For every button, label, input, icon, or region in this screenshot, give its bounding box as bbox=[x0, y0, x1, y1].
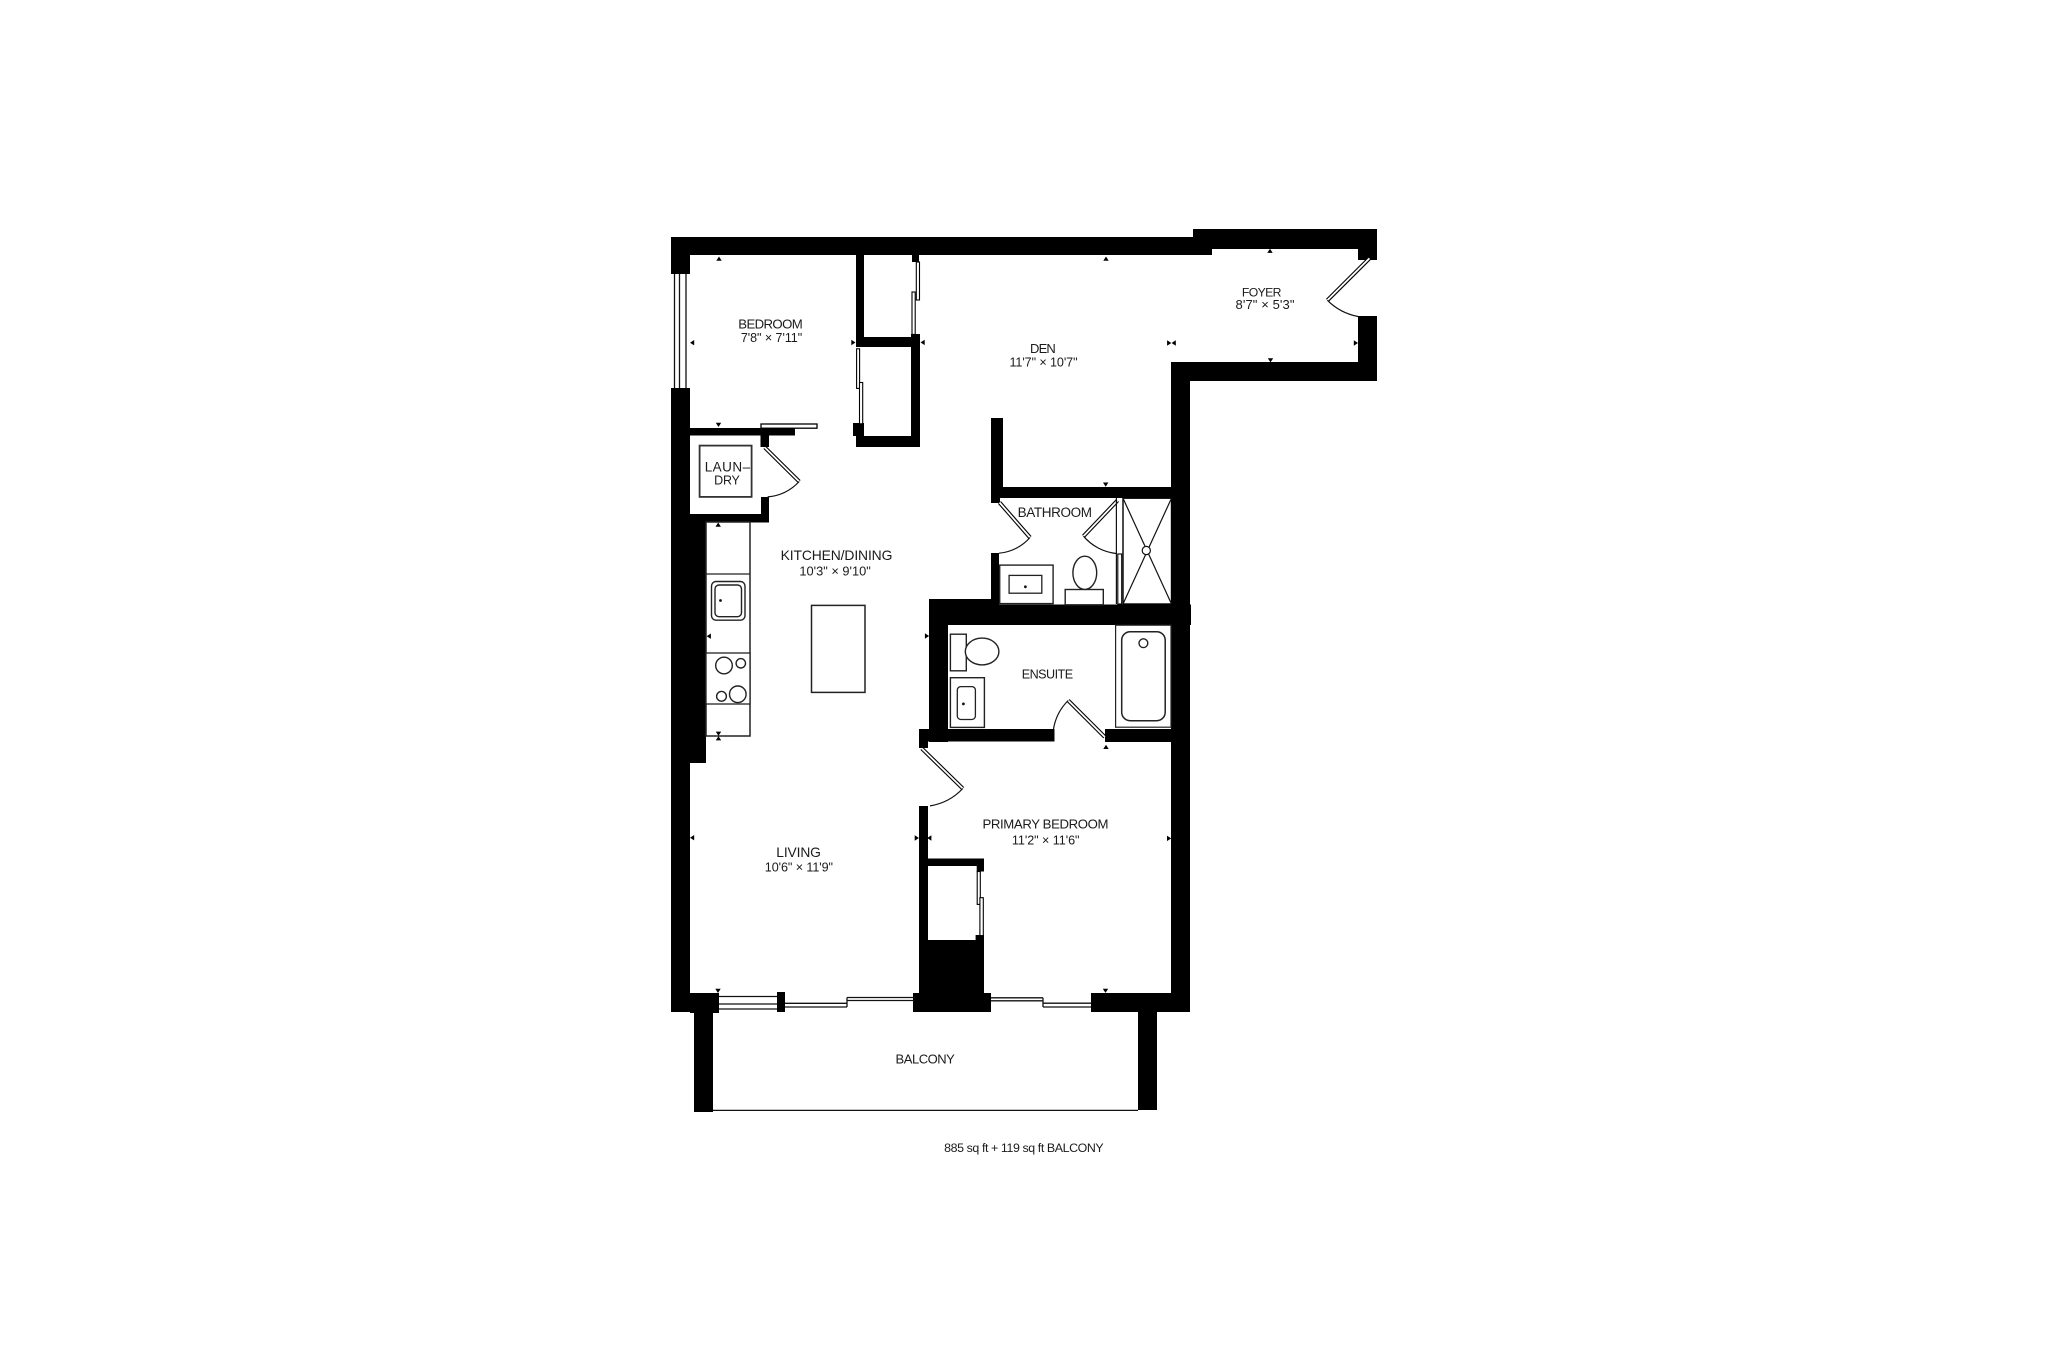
svg-text:DEN: DEN bbox=[1030, 341, 1056, 356]
svg-text:10'3" × 9'10": 10'3" × 9'10" bbox=[799, 564, 870, 579]
svg-text:BALCONY: BALCONY bbox=[896, 1052, 956, 1067]
svg-text:LIVING: LIVING bbox=[776, 845, 821, 860]
svg-text:11'2" × 11'6": 11'2" × 11'6" bbox=[1012, 833, 1080, 847]
svg-text:11'7" × 10'7": 11'7" × 10'7" bbox=[1009, 355, 1077, 369]
svg-text:ENSUITE: ENSUITE bbox=[1022, 668, 1073, 682]
svg-text:LAUN–: LAUN– bbox=[705, 459, 751, 474]
svg-text:PRIMARY BEDROOM: PRIMARY BEDROOM bbox=[982, 817, 1108, 832]
svg-text:885 sq ft + 119 sq ft BALCONY: 885 sq ft + 119 sq ft BALCONY bbox=[944, 1141, 1104, 1155]
svg-text:KITCHEN/DINING: KITCHEN/DINING bbox=[781, 547, 893, 563]
svg-text:BEDROOM: BEDROOM bbox=[738, 317, 802, 332]
svg-text:10'6" × 11'9": 10'6" × 11'9" bbox=[765, 861, 833, 875]
svg-text:DRY: DRY bbox=[714, 474, 740, 488]
svg-text:BATHROOM: BATHROOM bbox=[1018, 505, 1092, 520]
svg-text:8'7" × 5'3": 8'7" × 5'3" bbox=[1236, 297, 1295, 312]
svg-text:7'8" × 7'11": 7'8" × 7'11" bbox=[741, 331, 802, 345]
